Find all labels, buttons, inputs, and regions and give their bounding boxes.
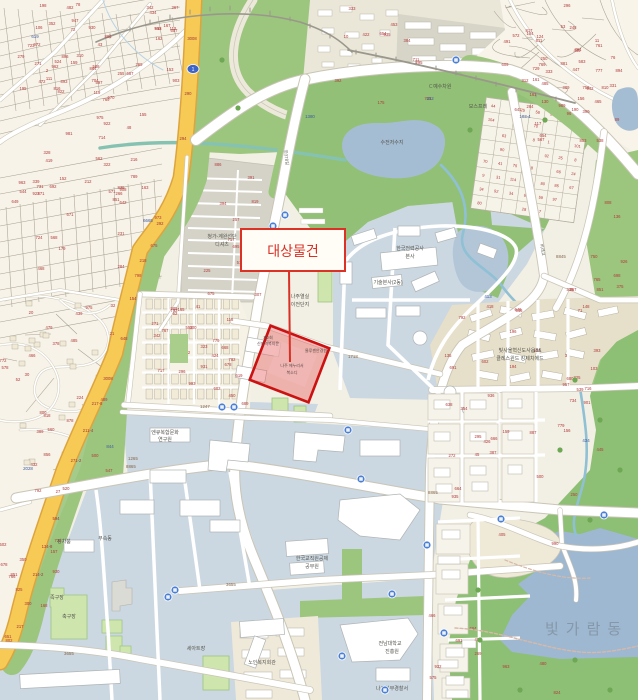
svg-text:641: 641 bbox=[515, 107, 523, 112]
svg-text:2028: 2028 bbox=[23, 466, 33, 471]
svg-text:307: 307 bbox=[255, 292, 263, 297]
svg-text:678: 678 bbox=[225, 362, 233, 367]
svg-text:159: 159 bbox=[503, 429, 511, 434]
svg-text:666: 666 bbox=[491, 436, 499, 441]
svg-text:468: 468 bbox=[38, 266, 46, 271]
svg-text:수전저수지: 수전저수지 bbox=[380, 139, 403, 146]
svg-text:214-2: 214-2 bbox=[33, 572, 44, 577]
svg-text:524: 524 bbox=[55, 59, 63, 64]
svg-text:926: 926 bbox=[621, 259, 629, 264]
svg-text:424: 424 bbox=[212, 353, 220, 358]
svg-text:3008: 3008 bbox=[187, 36, 197, 41]
svg-text:936: 936 bbox=[488, 393, 496, 398]
svg-text:990: 990 bbox=[552, 541, 560, 546]
svg-text:800: 800 bbox=[40, 410, 48, 415]
svg-text:119: 119 bbox=[94, 90, 101, 95]
svg-text:103: 103 bbox=[591, 366, 599, 371]
svg-text:485: 485 bbox=[71, 338, 79, 343]
svg-text:342: 342 bbox=[154, 333, 162, 338]
svg-text:333: 333 bbox=[546, 69, 554, 74]
svg-text:161: 161 bbox=[533, 77, 541, 82]
svg-text:클레스윈드 킹제치에드: 클레스윈드 킹제치에드 bbox=[496, 355, 544, 362]
svg-text:328: 328 bbox=[44, 150, 52, 155]
svg-text:772: 772 bbox=[0, 358, 7, 363]
svg-text:154: 154 bbox=[130, 296, 138, 301]
svg-text:731: 731 bbox=[37, 184, 45, 189]
svg-text:징차붐: 징차붐 bbox=[57, 538, 71, 545]
svg-text:806: 806 bbox=[105, 34, 113, 39]
svg-text:808: 808 bbox=[605, 200, 613, 205]
svg-text:76: 76 bbox=[611, 55, 616, 60]
svg-text:485: 485 bbox=[542, 81, 550, 86]
svg-text:539: 539 bbox=[577, 387, 585, 392]
svg-text:649: 649 bbox=[12, 199, 20, 204]
svg-text:472: 472 bbox=[39, 79, 47, 84]
svg-text:175: 175 bbox=[378, 100, 386, 105]
svg-text:851: 851 bbox=[597, 287, 605, 292]
svg-text:704: 704 bbox=[92, 78, 100, 83]
svg-text:391: 391 bbox=[248, 175, 256, 180]
svg-text:466: 466 bbox=[29, 353, 37, 358]
svg-text:156: 156 bbox=[564, 428, 572, 433]
svg-text:290: 290 bbox=[185, 91, 193, 96]
svg-text:디셔츠: 디셔츠 bbox=[215, 241, 229, 248]
svg-text:825: 825 bbox=[16, 587, 24, 592]
svg-text:930: 930 bbox=[89, 25, 97, 30]
svg-text:717: 717 bbox=[158, 368, 166, 373]
svg-text:352: 352 bbox=[49, 21, 57, 26]
svg-text:부속동: 부속동 bbox=[98, 535, 112, 542]
svg-text:10: 10 bbox=[344, 34, 349, 39]
svg-text:331: 331 bbox=[610, 83, 618, 88]
svg-text:724: 724 bbox=[36, 235, 44, 240]
svg-text:691: 691 bbox=[456, 638, 464, 643]
svg-text:310: 310 bbox=[77, 53, 85, 58]
svg-text:225: 225 bbox=[204, 268, 212, 273]
svg-text:152: 152 bbox=[60, 176, 68, 181]
svg-text:노인복지회관: 노인복지회관 bbox=[248, 659, 276, 666]
svg-text:기술본사(2동): 기술본사(2동) bbox=[373, 279, 402, 286]
svg-text:465: 465 bbox=[574, 48, 582, 53]
svg-text:32: 32 bbox=[111, 303, 116, 308]
svg-text:224: 224 bbox=[77, 395, 85, 400]
svg-text:43: 43 bbox=[98, 42, 103, 47]
svg-text:480: 480 bbox=[540, 661, 548, 666]
svg-text:482: 482 bbox=[67, 5, 75, 10]
svg-text:6665: 6665 bbox=[143, 218, 153, 223]
svg-text:394: 394 bbox=[220, 201, 228, 206]
svg-text:930: 930 bbox=[53, 569, 61, 574]
svg-text:211-4: 211-4 bbox=[83, 428, 94, 433]
svg-text:257: 257 bbox=[233, 217, 241, 222]
svg-text:893: 893 bbox=[61, 79, 69, 84]
svg-text:1718: 1718 bbox=[348, 354, 358, 359]
svg-text:323: 323 bbox=[201, 344, 209, 349]
svg-text:전남대학교: 전남대학교 bbox=[378, 640, 401, 647]
svg-text:993: 993 bbox=[189, 381, 197, 386]
svg-text:642: 642 bbox=[120, 200, 128, 205]
svg-text:963: 963 bbox=[503, 664, 511, 669]
svg-text:135: 135 bbox=[445, 353, 453, 358]
svg-text:638: 638 bbox=[446, 402, 454, 407]
svg-text:654: 654 bbox=[380, 31, 388, 36]
svg-text:250: 250 bbox=[571, 492, 579, 497]
svg-text:복소디: 복소디 bbox=[286, 369, 297, 375]
svg-text:878: 878 bbox=[67, 418, 75, 423]
svg-text:연구원: 연구원 bbox=[158, 436, 172, 443]
svg-text:392: 392 bbox=[335, 78, 343, 83]
svg-text:162: 162 bbox=[156, 36, 164, 41]
svg-text:750: 750 bbox=[591, 254, 599, 259]
svg-text:나주열실: 나주열실 bbox=[291, 293, 310, 300]
svg-text:세아트장: 세아트장 bbox=[187, 645, 206, 652]
svg-text:675: 675 bbox=[151, 243, 159, 248]
svg-text:48: 48 bbox=[127, 125, 132, 130]
svg-text:한국교직원공제: 한국교직원공제 bbox=[296, 555, 329, 562]
svg-text:217-8: 217-8 bbox=[92, 401, 103, 406]
svg-text:청가-계완선단: 청가-계완선단 bbox=[207, 233, 237, 240]
svg-text:333: 333 bbox=[349, 6, 357, 11]
svg-text:765: 765 bbox=[594, 277, 602, 282]
svg-text:896: 896 bbox=[62, 54, 70, 59]
svg-text:284: 284 bbox=[527, 104, 535, 109]
svg-text:675: 675 bbox=[208, 291, 216, 296]
svg-text:신지역복지윤: 신지역복지윤 bbox=[257, 340, 279, 346]
svg-text:975: 975 bbox=[86, 305, 94, 310]
svg-text:27: 27 bbox=[56, 489, 61, 494]
svg-text:279: 279 bbox=[18, 54, 26, 59]
svg-text:342: 342 bbox=[147, 5, 155, 10]
svg-text:810: 810 bbox=[602, 85, 610, 90]
svg-text:671: 671 bbox=[67, 212, 75, 217]
svg-text:962: 962 bbox=[52, 64, 60, 69]
svg-text:819: 819 bbox=[252, 199, 260, 204]
svg-text:3008: 3008 bbox=[103, 376, 113, 381]
svg-text:562: 562 bbox=[96, 156, 104, 161]
svg-text:3655: 3655 bbox=[64, 651, 74, 656]
svg-text:8865: 8865 bbox=[126, 464, 136, 469]
svg-text:물루젠안경원: 물루젠안경원 bbox=[305, 347, 327, 353]
svg-text:대상물건: 대상물건 bbox=[267, 243, 319, 259]
svg-text:294: 294 bbox=[180, 136, 188, 141]
svg-text:8845: 8845 bbox=[556, 254, 566, 259]
svg-text:547: 547 bbox=[106, 468, 114, 473]
svg-text:824: 824 bbox=[554, 690, 562, 695]
svg-text:196: 196 bbox=[510, 329, 518, 334]
svg-text:434: 434 bbox=[150, 10, 158, 15]
svg-text:678: 678 bbox=[1, 562, 9, 567]
svg-text:78: 78 bbox=[76, 2, 81, 7]
svg-text:378: 378 bbox=[53, 341, 61, 346]
svg-text:777: 777 bbox=[596, 68, 604, 73]
svg-text:922: 922 bbox=[104, 121, 112, 126]
svg-text:111: 111 bbox=[46, 76, 53, 81]
svg-text:106: 106 bbox=[36, 25, 44, 30]
svg-text:41: 41 bbox=[196, 304, 201, 309]
svg-text:600: 600 bbox=[190, 325, 198, 330]
svg-text:1: 1 bbox=[192, 67, 195, 73]
svg-text:모스프레: 모스프레 bbox=[469, 103, 488, 110]
svg-text:465: 465 bbox=[595, 99, 603, 104]
svg-text:292: 292 bbox=[157, 221, 165, 226]
svg-text:45: 45 bbox=[475, 452, 480, 457]
svg-text:931: 931 bbox=[201, 364, 209, 369]
svg-text:761: 761 bbox=[596, 43, 604, 48]
svg-text:935: 935 bbox=[452, 494, 460, 499]
svg-text:856: 856 bbox=[44, 452, 52, 457]
svg-text:734: 734 bbox=[570, 398, 578, 403]
svg-text:112: 112 bbox=[170, 26, 177, 31]
svg-text:3655: 3655 bbox=[226, 582, 236, 587]
svg-text:136: 136 bbox=[614, 214, 622, 219]
svg-text:851: 851 bbox=[11, 572, 19, 577]
svg-text:864: 864 bbox=[90, 66, 98, 71]
svg-text:184: 184 bbox=[527, 31, 535, 36]
svg-text:한국전력공사: 한국전력공사 bbox=[396, 245, 424, 252]
svg-text:1380: 1380 bbox=[305, 114, 315, 119]
svg-text:71: 71 bbox=[578, 308, 583, 313]
svg-text:1265: 1265 bbox=[128, 456, 138, 461]
svg-text:445: 445 bbox=[597, 447, 605, 452]
svg-text:853: 853 bbox=[580, 138, 588, 143]
svg-text:30: 30 bbox=[25, 372, 30, 377]
svg-text:871: 871 bbox=[38, 191, 46, 196]
svg-text:779: 779 bbox=[213, 338, 221, 343]
svg-text:609: 609 bbox=[502, 62, 510, 67]
svg-text:668: 668 bbox=[222, 345, 230, 350]
svg-text:218: 218 bbox=[140, 258, 148, 263]
svg-text:422: 422 bbox=[363, 32, 371, 37]
svg-text:322: 322 bbox=[104, 162, 112, 167]
svg-text:153: 153 bbox=[167, 67, 175, 72]
svg-text:본사: 본사 bbox=[405, 253, 415, 260]
svg-text:350: 350 bbox=[20, 557, 28, 562]
svg-text:664: 664 bbox=[455, 486, 463, 491]
svg-text:500: 500 bbox=[92, 453, 100, 458]
svg-text:엔큐복합문화: 엔큐복합문화 bbox=[151, 429, 179, 436]
svg-text:769: 769 bbox=[539, 62, 547, 67]
svg-text:72: 72 bbox=[71, 27, 76, 32]
svg-text:450: 450 bbox=[229, 393, 237, 398]
svg-text:284: 284 bbox=[118, 264, 126, 269]
svg-text:453: 453 bbox=[391, 22, 399, 27]
svg-text:124: 124 bbox=[537, 34, 545, 39]
svg-text:789: 789 bbox=[131, 174, 139, 179]
svg-text:134-8: 134-8 bbox=[42, 544, 53, 549]
svg-text:714: 714 bbox=[99, 135, 107, 140]
svg-text:390: 390 bbox=[583, 109, 591, 114]
svg-text:901: 901 bbox=[584, 400, 592, 405]
svg-text:89: 89 bbox=[615, 117, 620, 122]
svg-text:619: 619 bbox=[31, 34, 39, 39]
svg-text:502: 502 bbox=[0, 542, 7, 547]
svg-text:161: 161 bbox=[530, 92, 538, 97]
svg-text:932: 932 bbox=[435, 664, 443, 669]
svg-text:619: 619 bbox=[236, 373, 244, 378]
svg-text:963: 963 bbox=[19, 180, 27, 185]
svg-text:886: 886 bbox=[215, 162, 223, 167]
svg-text:981: 981 bbox=[66, 131, 74, 136]
svg-text:844: 844 bbox=[106, 444, 114, 449]
svg-text:695: 695 bbox=[233, 244, 241, 249]
svg-text:419: 419 bbox=[46, 158, 54, 163]
svg-text:나주 에누리서: 나주 에누리서 bbox=[280, 362, 304, 368]
svg-text:989: 989 bbox=[559, 103, 567, 108]
svg-text:271-2: 271-2 bbox=[71, 458, 82, 463]
svg-text:272: 272 bbox=[449, 453, 457, 458]
svg-text:159: 159 bbox=[71, 60, 79, 65]
svg-text:651: 651 bbox=[5, 634, 13, 639]
svg-text:387: 387 bbox=[490, 450, 498, 455]
svg-text:312: 312 bbox=[522, 78, 530, 83]
svg-text:이전단지: 이전단지 bbox=[291, 301, 309, 308]
svg-text:179: 179 bbox=[59, 246, 67, 251]
svg-text:903: 903 bbox=[173, 78, 181, 83]
svg-text:967: 967 bbox=[570, 287, 578, 292]
svg-text:538: 538 bbox=[597, 138, 605, 143]
svg-text:782: 782 bbox=[229, 357, 237, 362]
svg-text:빛가람동: 빛가람동 bbox=[545, 621, 628, 638]
svg-text:157: 157 bbox=[51, 549, 59, 554]
svg-text:389: 389 bbox=[37, 429, 45, 434]
svg-text:제2회: 제2회 bbox=[263, 334, 273, 340]
svg-text:족구장: 족구장 bbox=[50, 594, 64, 601]
svg-text:266: 266 bbox=[116, 191, 124, 196]
svg-text:269: 269 bbox=[475, 651, 483, 656]
svg-text:354: 354 bbox=[461, 406, 469, 411]
svg-text:53: 53 bbox=[561, 24, 566, 29]
svg-text:434: 434 bbox=[582, 438, 590, 443]
svg-text:572: 572 bbox=[513, 33, 521, 38]
svg-text:972: 972 bbox=[34, 42, 42, 47]
svg-text:413: 413 bbox=[484, 294, 492, 299]
svg-text:894: 894 bbox=[616, 68, 624, 73]
svg-text:163: 163 bbox=[142, 185, 150, 190]
svg-text:212: 212 bbox=[85, 179, 93, 184]
svg-text:271: 271 bbox=[35, 61, 43, 66]
svg-text:687: 687 bbox=[127, 71, 135, 76]
svg-text:ㄷ예수차원: ㄷ예수차원 bbox=[428, 83, 451, 90]
svg-text:117: 117 bbox=[535, 121, 542, 126]
svg-text:654: 654 bbox=[540, 133, 548, 138]
svg-text:544: 544 bbox=[20, 189, 28, 194]
svg-text:271: 271 bbox=[152, 321, 160, 326]
svg-text:691: 691 bbox=[450, 365, 458, 370]
svg-text:798: 798 bbox=[135, 273, 143, 278]
svg-text:466: 466 bbox=[429, 613, 437, 618]
svg-text:255: 255 bbox=[118, 71, 126, 76]
svg-text:698: 698 bbox=[614, 273, 622, 278]
svg-text:568: 568 bbox=[51, 235, 59, 240]
svg-text:792: 792 bbox=[459, 315, 467, 320]
svg-text:881: 881 bbox=[561, 61, 569, 66]
svg-text:822: 822 bbox=[58, 89, 66, 94]
svg-text:195: 195 bbox=[20, 86, 28, 91]
svg-text:축구장: 축구장 bbox=[62, 613, 76, 620]
svg-text:583: 583 bbox=[579, 59, 587, 64]
svg-text:공무원: 공무원 bbox=[305, 563, 319, 570]
svg-text:560: 560 bbox=[48, 427, 56, 432]
svg-text:103-4: 103-4 bbox=[519, 114, 531, 119]
svg-text:300: 300 bbox=[25, 601, 33, 606]
svg-text:52: 52 bbox=[16, 377, 21, 382]
svg-text:296: 296 bbox=[179, 369, 187, 374]
svg-text:118: 118 bbox=[227, 317, 234, 322]
svg-text:367: 367 bbox=[172, 5, 180, 10]
svg-text:269: 269 bbox=[136, 62, 144, 67]
svg-text:216: 216 bbox=[131, 157, 139, 162]
svg-text:384: 384 bbox=[404, 38, 412, 43]
svg-text:479: 479 bbox=[46, 325, 54, 330]
svg-text:1247: 1247 bbox=[200, 404, 210, 409]
svg-text:716: 716 bbox=[585, 386, 593, 391]
svg-text:515: 515 bbox=[516, 308, 524, 313]
svg-text:769: 769 bbox=[103, 97, 111, 102]
svg-text:767: 767 bbox=[162, 328, 170, 333]
svg-text:578: 578 bbox=[2, 365, 10, 370]
svg-text:빛사올혁신도사옵8&: 빛사올혁신도사옵8& bbox=[499, 347, 543, 354]
svg-text:602: 602 bbox=[214, 386, 222, 391]
svg-text:575: 575 bbox=[430, 675, 438, 680]
svg-text:190: 190 bbox=[572, 107, 580, 112]
svg-text:729: 729 bbox=[533, 66, 541, 71]
svg-text:8865: 8865 bbox=[428, 490, 438, 495]
svg-text:295: 295 bbox=[416, 60, 424, 65]
svg-text:520: 520 bbox=[63, 486, 71, 491]
svg-text:217: 217 bbox=[17, 624, 25, 629]
svg-text:231: 231 bbox=[118, 231, 126, 236]
svg-text:198: 198 bbox=[40, 3, 48, 8]
svg-text:375: 375 bbox=[617, 284, 625, 289]
svg-text:393: 393 bbox=[594, 348, 602, 353]
svg-text:973: 973 bbox=[155, 215, 163, 220]
svg-text:389: 389 bbox=[563, 85, 571, 90]
svg-text:418: 418 bbox=[487, 304, 495, 309]
svg-text:21: 21 bbox=[110, 331, 115, 336]
svg-text:602: 602 bbox=[482, 359, 490, 364]
svg-text:진흥원: 진흥원 bbox=[385, 648, 399, 655]
svg-text:957: 957 bbox=[563, 382, 571, 387]
svg-text:155: 155 bbox=[140, 112, 148, 117]
svg-text:595: 595 bbox=[155, 26, 163, 31]
svg-text:447: 447 bbox=[573, 67, 581, 72]
svg-text:296: 296 bbox=[564, 3, 572, 8]
svg-text:194: 194 bbox=[510, 364, 518, 369]
svg-text:887: 887 bbox=[530, 430, 538, 435]
svg-text:405: 405 bbox=[499, 532, 507, 537]
svg-text:295: 295 bbox=[475, 434, 483, 439]
svg-text:500: 500 bbox=[537, 474, 545, 479]
svg-text:758: 758 bbox=[583, 85, 591, 90]
svg-text:439: 439 bbox=[76, 311, 84, 316]
svg-text:248: 248 bbox=[570, 25, 578, 30]
svg-text:792: 792 bbox=[171, 308, 179, 313]
svg-text:156: 156 bbox=[578, 96, 586, 101]
svg-text:491: 491 bbox=[504, 39, 512, 44]
svg-text:648: 648 bbox=[121, 336, 129, 341]
svg-text:975: 975 bbox=[97, 115, 105, 120]
svg-text:792: 792 bbox=[35, 488, 43, 493]
svg-text:250: 250 bbox=[541, 56, 549, 61]
svg-text:148: 148 bbox=[583, 304, 591, 309]
svg-text:835: 835 bbox=[118, 185, 126, 190]
svg-text:692: 692 bbox=[50, 184, 58, 189]
svg-text:689: 689 bbox=[242, 401, 250, 406]
svg-text:339: 339 bbox=[33, 179, 41, 184]
svg-text:20: 20 bbox=[29, 310, 34, 315]
svg-text:402: 402 bbox=[426, 96, 434, 101]
svg-text:165: 165 bbox=[178, 307, 186, 312]
